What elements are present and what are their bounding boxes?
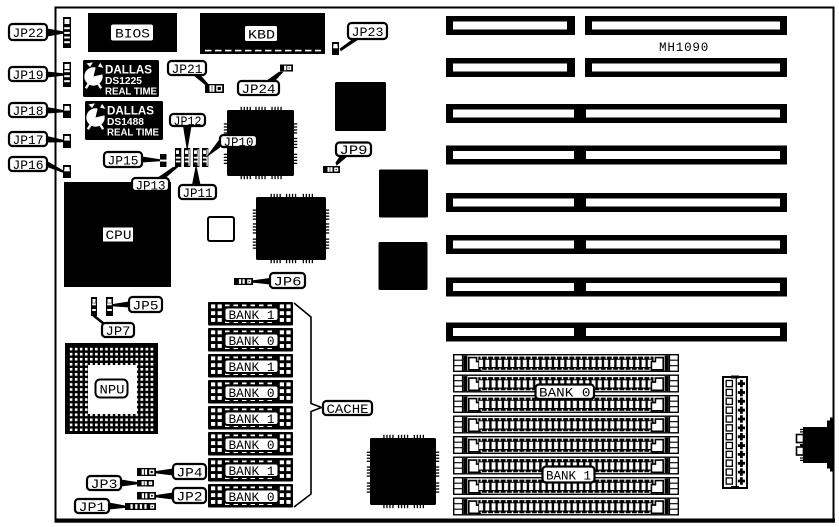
svg-text:KBD: KBD: [248, 28, 275, 43]
svg-text:JP7: JP7: [106, 324, 131, 339]
svg-text:REAL TIME: REAL TIME: [107, 127, 159, 139]
svg-text:JP22: JP22: [13, 26, 44, 41]
svg-text:NPU: NPU: [100, 382, 125, 397]
svg-text:JP24: JP24: [242, 82, 276, 97]
svg-text:BANK 1: BANK 1: [546, 468, 591, 483]
svg-text:BANK 0: BANK 0: [539, 386, 591, 401]
svg-text:BANK 1: BANK 1: [229, 412, 275, 427]
svg-text:BANK 1: BANK 1: [229, 464, 275, 479]
svg-text:BANK 0: BANK 0: [229, 386, 275, 401]
svg-text:BANK 1: BANK 1: [229, 308, 275, 323]
svg-text:JP11: JP11: [183, 186, 213, 201]
svg-text:JP6: JP6: [274, 274, 302, 289]
svg-text:CPU: CPU: [106, 228, 132, 243]
svg-text:MH1090: MH1090: [659, 41, 709, 55]
svg-text:BANK 0: BANK 0: [229, 490, 275, 505]
svg-text:JP4: JP4: [177, 465, 203, 480]
svg-text:JP19: JP19: [13, 68, 44, 83]
svg-text:BANK 1: BANK 1: [229, 360, 275, 375]
svg-text:JP18: JP18: [13, 104, 44, 119]
svg-text:JP3: JP3: [91, 477, 118, 492]
svg-text:JP9: JP9: [340, 143, 368, 158]
svg-text:JP23: JP23: [352, 25, 384, 40]
svg-text:JP2: JP2: [177, 489, 203, 504]
svg-text:JP1: JP1: [79, 500, 106, 515]
svg-text:JP5: JP5: [133, 298, 159, 313]
svg-text:JP15: JP15: [108, 153, 139, 168]
svg-text:BANK 0: BANK 0: [229, 334, 275, 349]
svg-text:JP17: JP17: [13, 133, 44, 148]
svg-text:JP21: JP21: [172, 62, 203, 77]
svg-text:REAL TIME: REAL TIME: [105, 86, 157, 98]
svg-text:JP16: JP16: [13, 158, 44, 173]
svg-text:JP10: JP10: [224, 135, 254, 150]
svg-text:BIOS: BIOS: [115, 27, 150, 42]
svg-text:JP13: JP13: [136, 178, 166, 193]
svg-text:CACHE: CACHE: [327, 402, 369, 417]
svg-text:BANK 0: BANK 0: [229, 438, 275, 453]
